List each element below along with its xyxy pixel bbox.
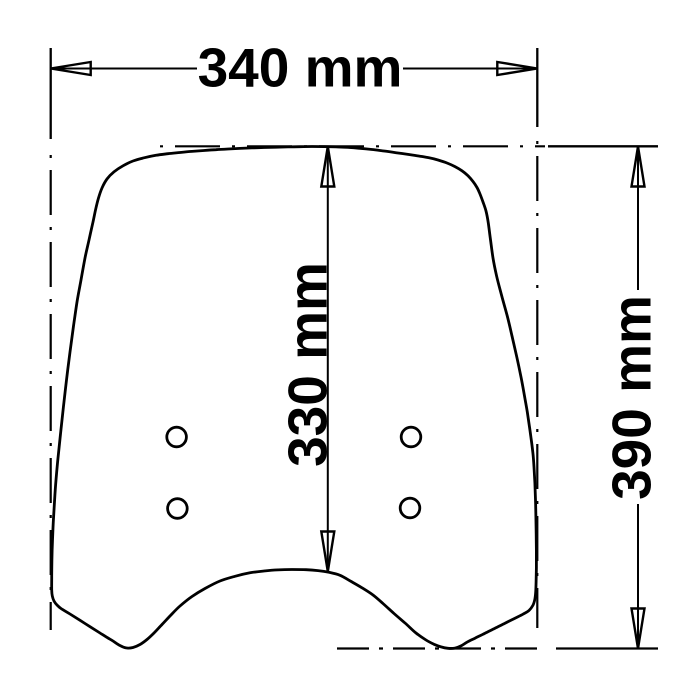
svg-text:340 mm: 340 mm — [198, 37, 403, 99]
svg-text:390 mm: 390 mm — [601, 295, 663, 500]
svg-text:330 mm: 330 mm — [277, 262, 339, 467]
